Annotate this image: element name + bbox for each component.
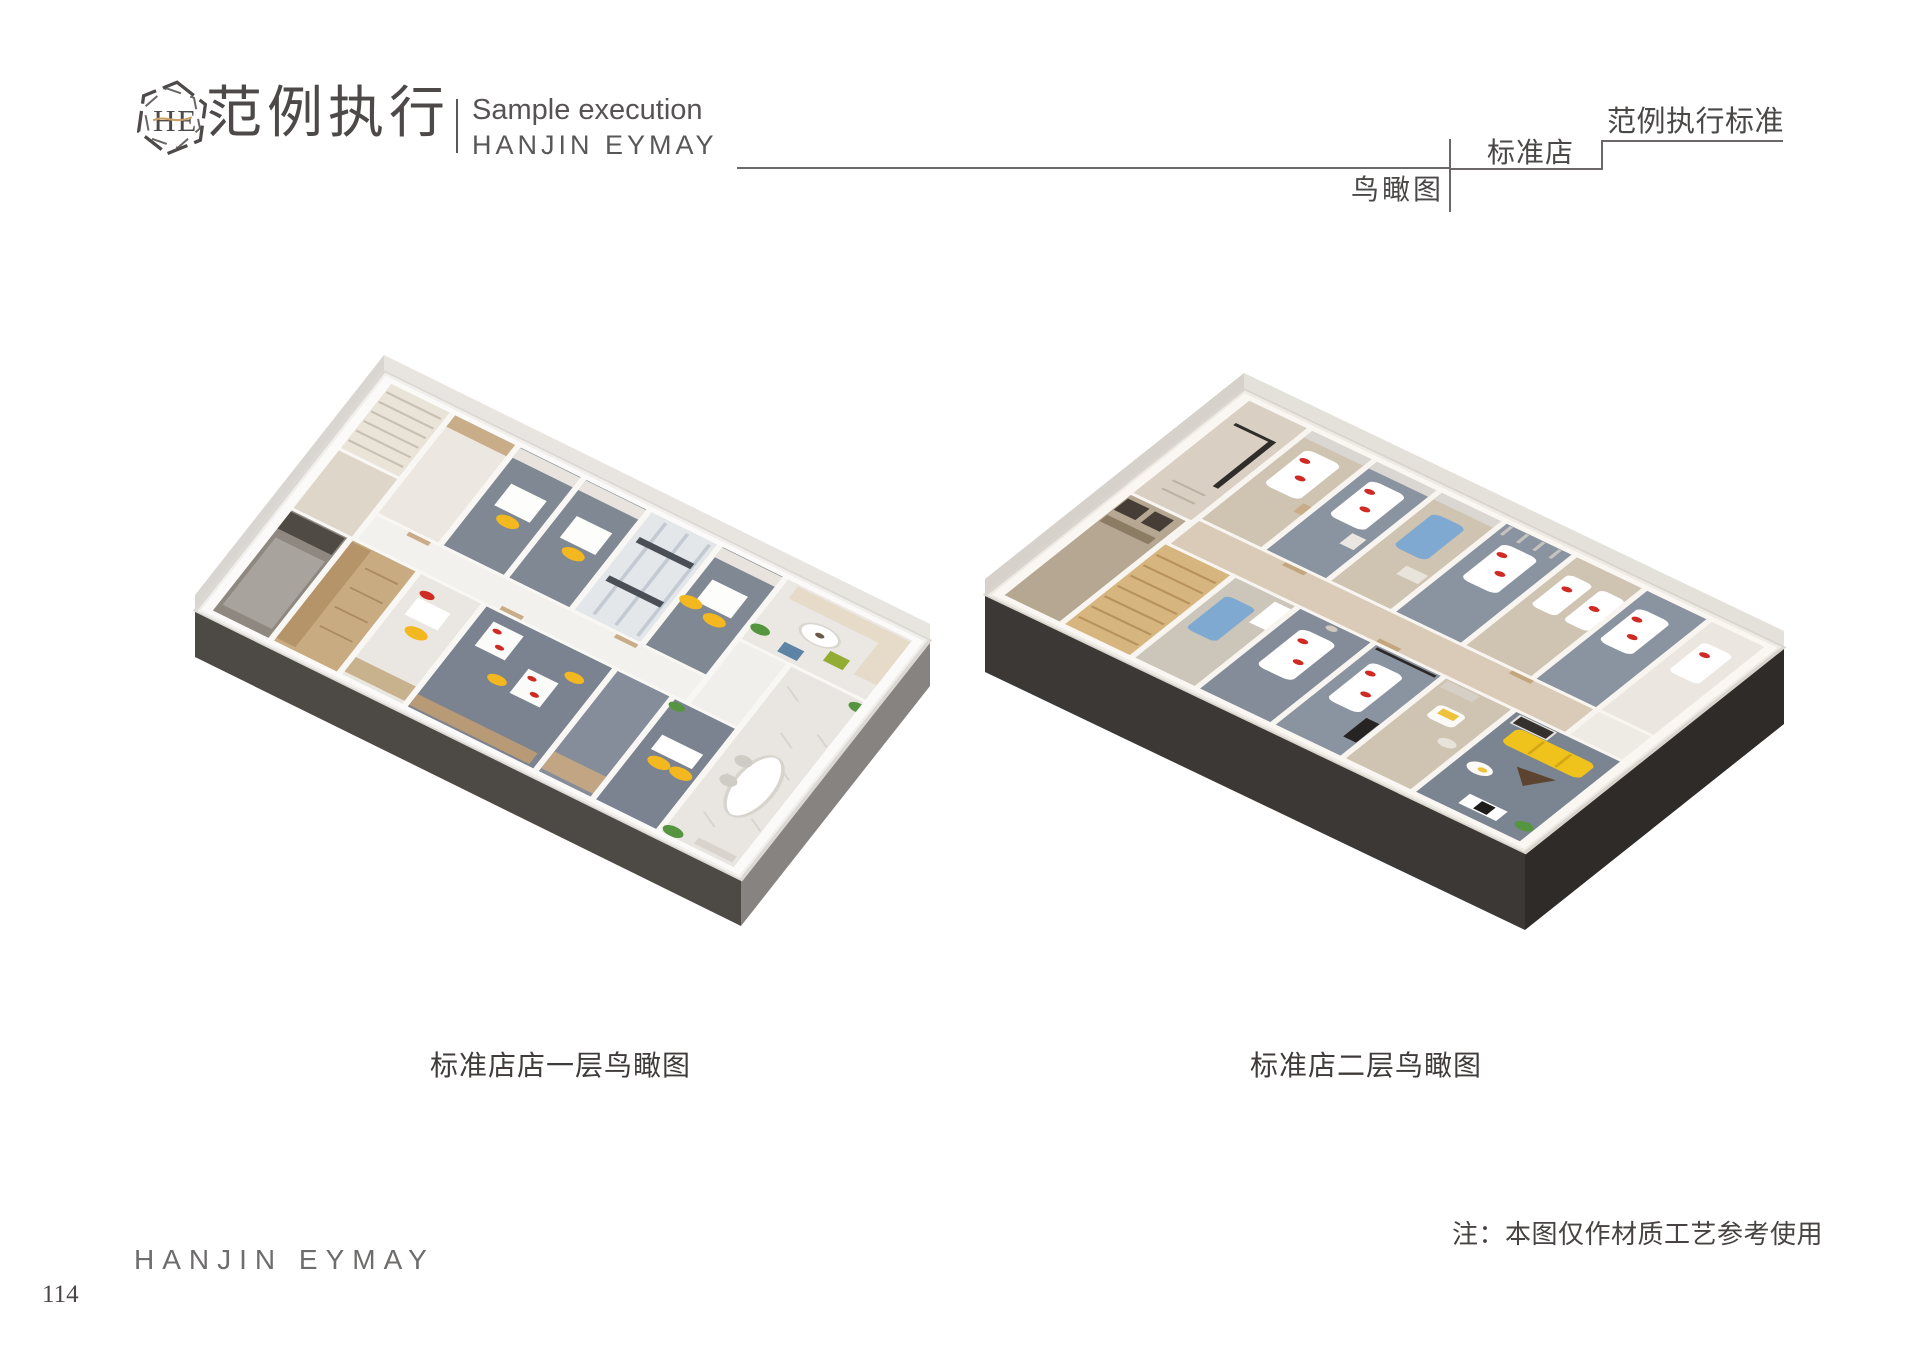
manual-page: HE 范例执行 Sample execution HANJIN EYMAY 鸟瞰… (0, 0, 1920, 1357)
second-floor-plan-illustration (985, 373, 1784, 930)
brand-wordmark-footer: HANJIN EYMAY (134, 1246, 435, 1274)
first-floor-plan-illustration (195, 355, 930, 926)
material-reference-note: 注：本图仅作材质工艺参考使用 (1452, 1219, 1823, 1250)
caption-first-floor: 标准店店一层鸟瞰图 (430, 1053, 691, 1081)
page-number: 114 (42, 1282, 79, 1307)
caption-second-floor: 标准店二层鸟瞰图 (1250, 1053, 1482, 1081)
floorplan-illustrations (0, 0, 1920, 1357)
